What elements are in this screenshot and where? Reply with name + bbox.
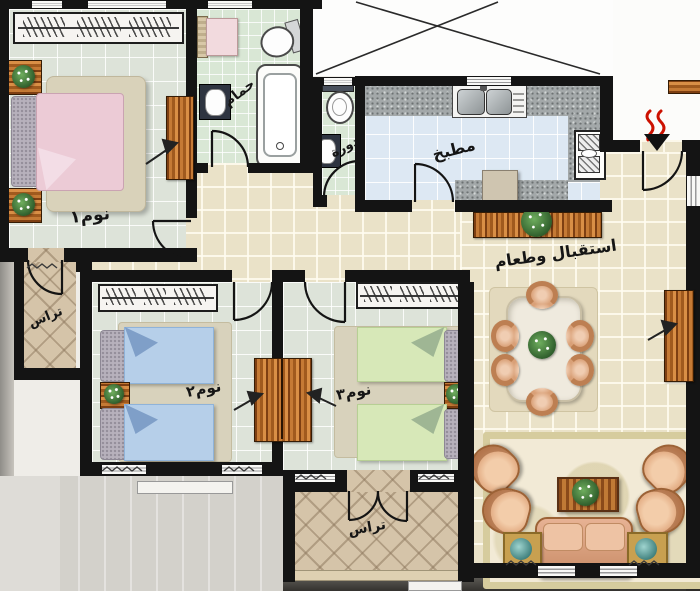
potted-plant (528, 331, 556, 359)
wall-segment (363, 200, 412, 212)
wall-segment (0, 248, 28, 262)
exterior-left-strip (0, 262, 14, 476)
dining-chair (566, 354, 594, 386)
dining-chair (566, 320, 594, 352)
wardrobe-bedroom1 (13, 12, 184, 44)
window (418, 474, 454, 482)
wall-segment (682, 140, 700, 152)
bathtub (256, 64, 304, 168)
potted-plant (104, 384, 124, 404)
wall-segment (80, 270, 92, 476)
exterior-shelf (668, 80, 700, 94)
wall-segment (455, 200, 612, 212)
wall-segment (272, 270, 305, 282)
stove-burner-bottom (578, 156, 600, 173)
hanger-hatch (364, 286, 392, 302)
kitchen-sink-basin-right (486, 89, 512, 115)
kitchen-drainboard (513, 89, 524, 113)
sofa-cushion (543, 523, 583, 551)
hanger-hatch (106, 288, 136, 305)
hanger-hatch (144, 288, 166, 305)
wall-segment (345, 270, 470, 282)
hanger-hatch (129, 17, 171, 37)
room-label-bedroom1: نوم١ (69, 204, 111, 228)
wall-segment (460, 563, 700, 578)
door-panel-bedroom1 (166, 96, 194, 180)
terrace-south-rim (290, 570, 462, 581)
wall-segment (248, 163, 313, 173)
door-panel-balcony (664, 290, 694, 382)
hanger-hatch (77, 17, 121, 37)
sofa-cushion (585, 523, 625, 551)
bathroom-sink-basin (205, 89, 226, 116)
flower-arrangement (572, 479, 599, 506)
window (208, 1, 252, 8)
dining-chair (491, 354, 519, 386)
bathtub-drain (276, 142, 284, 150)
entrance-gap-floor (640, 140, 682, 152)
window (687, 176, 700, 206)
wardrobe-bedroom3 (356, 282, 468, 309)
wall-segment (458, 282, 474, 582)
window (102, 465, 146, 474)
window (324, 78, 352, 85)
kitchen-sink-unit (452, 84, 527, 118)
exterior-bottom-left-light (0, 476, 60, 591)
stairwell-void (313, 0, 613, 76)
door-panel-bedrooms23 (254, 358, 312, 442)
hanger-hatch (23, 17, 65, 37)
window (538, 566, 575, 576)
stove-oval (581, 149, 597, 158)
exterior-top-right (613, 0, 700, 140)
window (88, 1, 166, 8)
terrace-west-door-gap (28, 248, 64, 262)
floor-plan: نوم١ حمام دورة مطبخ استقبال وطعام نوم٢ ن… (0, 0, 700, 591)
wall-segment (14, 368, 86, 380)
wall-segment (313, 77, 322, 207)
window (295, 474, 335, 482)
side-table-plant (510, 538, 532, 560)
side-table-plant (635, 538, 657, 560)
dining-chair (526, 388, 558, 416)
door-panel-seam (281, 359, 283, 439)
wc-toilet-bowl-inner (332, 98, 347, 116)
window (600, 566, 637, 576)
doorstep (137, 481, 233, 494)
potted-plant (12, 65, 35, 88)
wall-segment (0, 0, 9, 262)
terrace-south-door-gap (347, 470, 410, 492)
window (32, 1, 62, 8)
potted-plant (12, 193, 35, 216)
wall-segment (600, 140, 640, 152)
wall-segment (300, 0, 313, 173)
wall-segment (80, 270, 232, 282)
dining-chair (526, 281, 558, 309)
wall-segment (14, 262, 24, 370)
dining-chair (491, 320, 519, 352)
kitchen-sink-basin-left (457, 89, 485, 115)
window (467, 77, 511, 85)
doorstep (408, 581, 462, 591)
wc-toilet-bowl (326, 91, 354, 124)
wall-segment (283, 470, 295, 582)
bathroom-counter (206, 18, 238, 56)
window (222, 465, 262, 474)
hanger-hatch (400, 286, 424, 302)
wall-segment (313, 195, 327, 207)
hanger-hatch (174, 288, 206, 305)
wardrobe-bedroom2 (98, 284, 218, 312)
wall-segment (196, 163, 208, 173)
hanger-hatch (430, 286, 458, 302)
